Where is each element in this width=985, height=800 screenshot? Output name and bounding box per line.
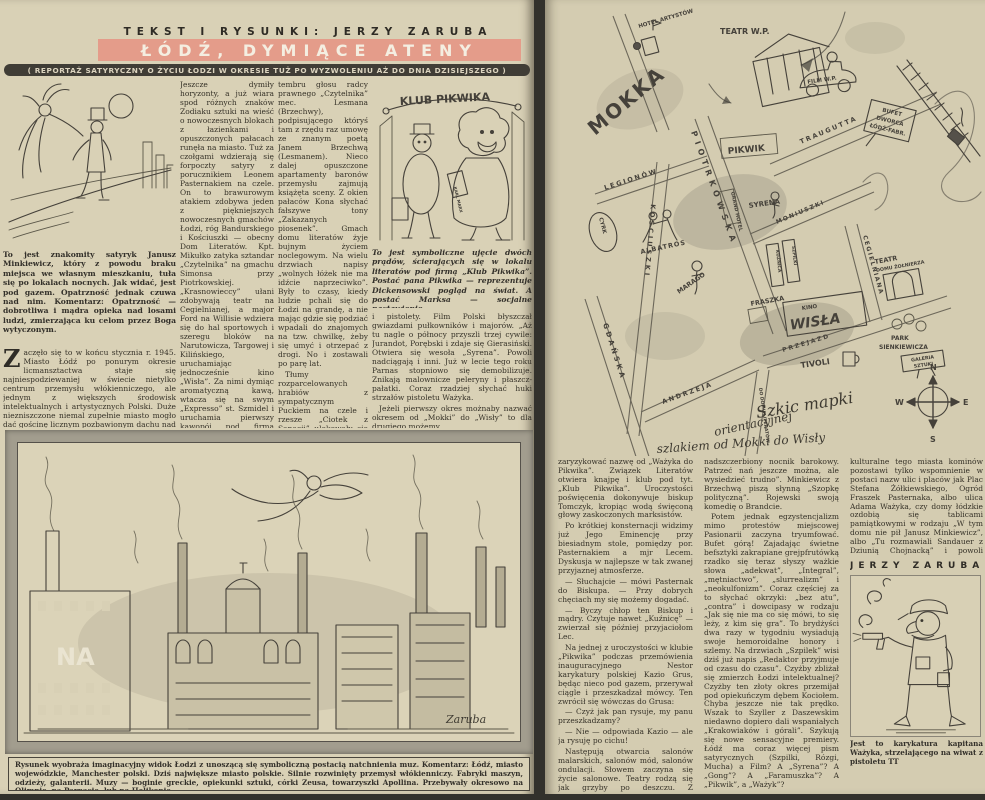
wazyk-caricature-drawing (850, 575, 981, 737)
paragraph: kulturalne tego miasta kominów pozostawi… (850, 458, 983, 556)
paragraph: Tłumy rozparcelowanych hrabiów z sympaty… (278, 370, 368, 428)
panorama-na-letters: NA (56, 643, 95, 671)
map-label-kosciuszki: KOŚCIUSZKI (643, 204, 658, 279)
right-magazine-page: MOKKA HOTEL ARTYSTÓW TEATR W.P. PIKWIK T… (545, 0, 985, 794)
map-label-legionow: LEGIONÓW (603, 166, 659, 192)
motion-lines (9, 212, 73, 238)
paragraph: i pistolety. Film Polski błyszczał gwiaz… (372, 312, 532, 402)
decorative-swirls (863, 91, 981, 210)
tightrope-walker (73, 108, 111, 200)
paragraph: Jeżeli pierwszy okres możnaby nazwać okr… (372, 404, 532, 428)
map-label-cyrk: CYRK (597, 217, 607, 235)
compass-e: E (963, 398, 968, 407)
panorama-panel: NA (17, 442, 521, 742)
paragraph: — Byczy chłop ten Biskup i mądry. Czytuj… (558, 607, 693, 643)
bufet-sign: BUFET DWORCA ŁÓDŹ-FABR. (860, 100, 916, 156)
right-column-c: kulturalne tego miasta kominów pozostawi… (850, 458, 983, 792)
lead-text: aczęło się to w końcu stycznia r. 1945. … (3, 348, 176, 428)
compass-w: W (895, 398, 904, 407)
paragraph: Po krótkiej konsternacji widzimy już Jeg… (558, 522, 693, 575)
compass-n: N (930, 363, 937, 372)
pistol (853, 633, 885, 649)
flying-muse (232, 470, 368, 521)
paragraph: tembru głosu radcy prawnego „Czytelnika”… (278, 80, 368, 368)
caricature-caption: Jest to karykatura kapitana Ważyka, strz… (850, 740, 983, 766)
klub-pikwika-drawing: KLUB PIKWIKA KARL MARX (374, 80, 530, 244)
smoke-curls (859, 578, 890, 627)
map-label-kuznica: KUŹNICA (774, 249, 784, 273)
map-label-andrzeja: ANDRZEJA (661, 380, 714, 406)
map-label-hotel-artystow: HOTEL ARTYSTÓW (638, 8, 694, 30)
panorama-caption: Rysunek wyobraża imaginacyjny widok Łodz… (8, 757, 530, 791)
column-3: tembru głosu radcy prawnego „Czytelnika”… (278, 80, 368, 428)
paragraph: — Czyż jak pan rysuje, my panu przeszkad… (558, 708, 693, 726)
paragraph: — Słuchajcie — mówi Pasternak do Biskupa… (558, 578, 693, 605)
column-1: Zaczęło się to w końcu stycznia r. 1945.… (3, 348, 176, 428)
left-magazine-page: TEKST I RYSUNKI: JERZY ZARUBA ŁÓDŹ, DYMI… (0, 0, 534, 794)
lodz-panorama-drawing: NA (18, 443, 520, 739)
compass-s: S (930, 435, 936, 444)
karl-marx-book-label: KARL MARX (453, 186, 464, 213)
route-arrows (709, 12, 845, 104)
pickwick-figure (392, 124, 440, 238)
title-band: ŁÓDŹ, DYMIĄCE ATENY (98, 39, 521, 61)
page-title: ŁÓDŹ, DYMIĄCE ATENY (141, 41, 478, 60)
map-label-fraszka: FRASZKA (750, 294, 785, 308)
kicker: TEKST I RYSUNKI: JERZY ZARUBA (95, 26, 521, 38)
drop-cap: Z (3, 348, 24, 369)
tightrope-cartoon-drawing (3, 80, 176, 246)
muse-figure (19, 84, 83, 178)
paragraph: Potem jednak egzystencjalizm mimo protes… (704, 513, 839, 789)
paragraph: Jeszcze dymiły horyzonty, a już wiara sp… (180, 80, 274, 428)
right-column-a: zaryzykować nazwę od „Ważyka do Pikwika”… (558, 458, 693, 792)
teatr-wp-building (753, 33, 829, 107)
map-label-marago: MARAGO (676, 270, 708, 295)
wazyk-figure (853, 600, 965, 733)
column-2: Jeszcze dymiły horyzonty, a już wiara sp… (180, 80, 274, 428)
palace-center (168, 543, 318, 729)
cartoon1-caption: To jest znakomity satyryk Janusz Minkiew… (3, 250, 176, 342)
city-silhouette (11, 142, 173, 200)
marx-figure: KARL MARX (447, 108, 510, 240)
pikwik-sign-label: KLUB PIKWIKA (399, 90, 490, 108)
author-signature: JERZY ZARUBA (850, 562, 983, 571)
paragraph: nadszczerbiony nocnik barokowy. Patrzeć … (704, 458, 839, 511)
marago-mark: MARAGO (676, 261, 708, 296)
paragraph: Następują otwarcia salonów malarskich, s… (558, 748, 693, 792)
map-label-teatr-dz-1: TEATR (874, 254, 898, 266)
lodz-sketch-map: MOKKA HOTEL ARTYSTÓW TEATR W.P. PIKWIK T… (545, 4, 985, 456)
paragraph: zaryzykować nazwę od „Ważyka do Pikwika”… (558, 458, 693, 520)
right-column-b: nadszczerbiony nocnik barokowy. Patrzeć … (704, 458, 839, 792)
buildings-right (336, 533, 505, 729)
paragraph: — Nie — odpowiada Kazio — ale ja rysuję … (558, 728, 693, 746)
pikwik-caption: To jest symboliczne ujęcie dwóch prądów,… (372, 248, 532, 308)
film-wp-car: FILM W.P. (796, 49, 858, 97)
lead-paragraph: Zaczęło się to w końcu stycznia r. 1945.… (3, 348, 176, 428)
map-label-teatr-wp: TEATR W.P. (720, 27, 770, 36)
cyrk-mark: CYRK (584, 209, 621, 255)
map-label-gdanska: GDAŃSKA (601, 322, 628, 382)
map-label-sienkiewicza: SIENKIEWICZA (879, 344, 928, 351)
compass-rose: N E S W (895, 363, 968, 444)
subtitle-band: ( REPORTAŻ SATYRYCZNY O ŻYCIU ŁODZI W OK… (4, 64, 530, 76)
kuznica-szpilki-buildings: KUŹNICA SZPILKI (766, 239, 800, 286)
paragraph: Na jednej z uroczystości w klubie „Pikwi… (558, 644, 693, 706)
tightrope (9, 170, 171, 222)
map-label-park: PARK (891, 335, 909, 342)
map-label-szpilki: SZPILKI (790, 246, 798, 266)
map-caption-line3: szlakiem od Mokki do Wisły (656, 430, 826, 456)
page-subtitle: ( REPORTAŻ SATYRYCZNY O ŻYCIU ŁODZI W OK… (28, 66, 507, 75)
artist-signature: Zaruba (445, 713, 486, 726)
column-4: i pistolety. Film Polski błyszczał gwiaz… (372, 312, 532, 428)
panorama-frame: NA (5, 430, 533, 754)
